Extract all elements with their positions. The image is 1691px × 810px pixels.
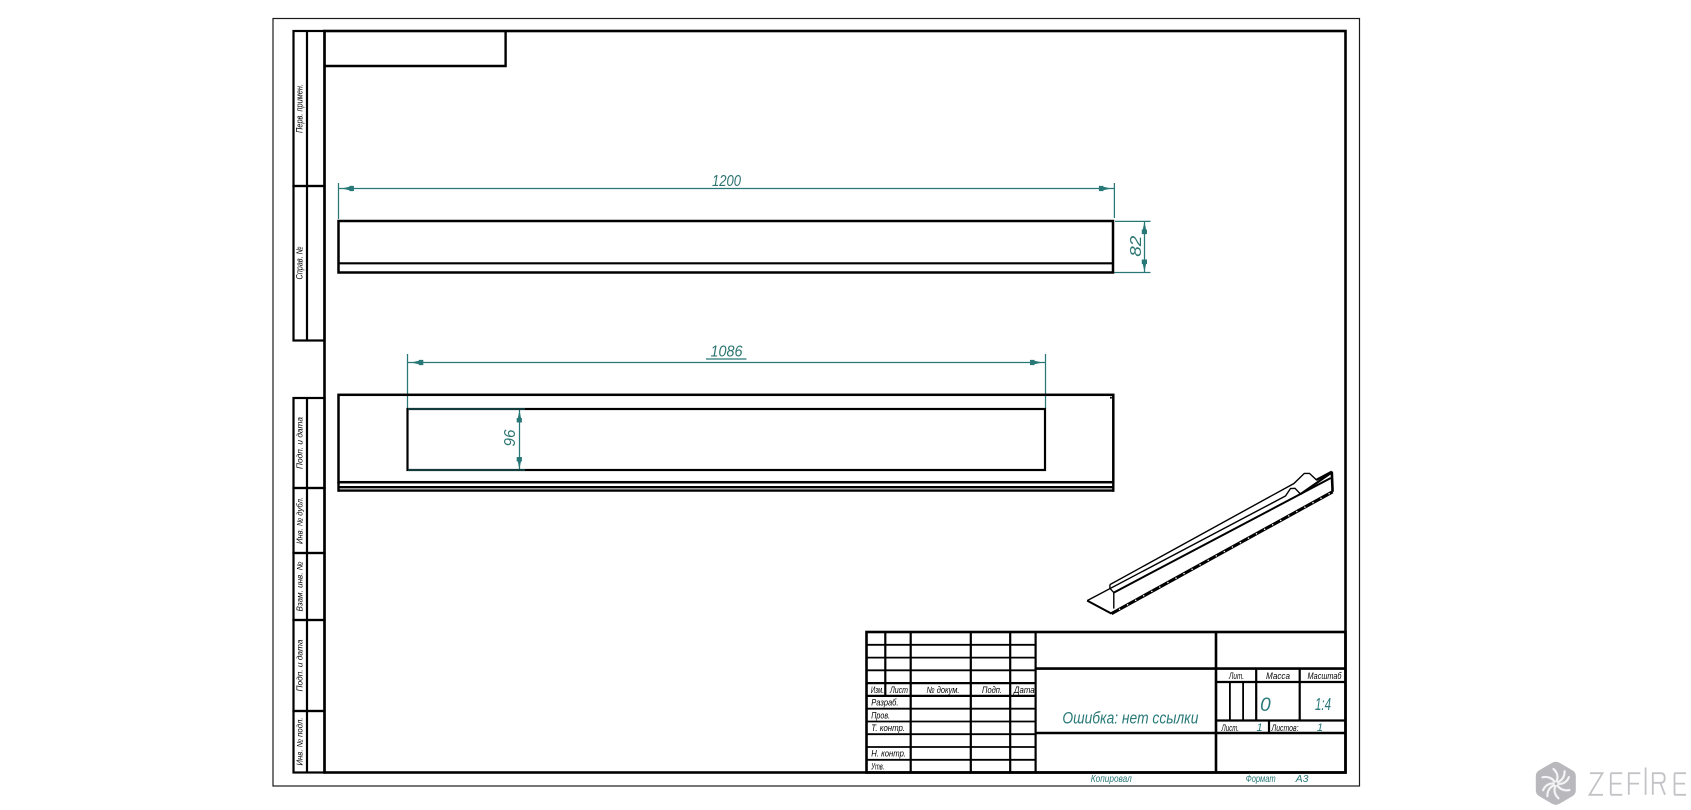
svg-text:1: 1 — [1317, 722, 1323, 734]
svg-text:Инв. № дубл.: Инв. № дубл. — [296, 497, 305, 544]
svg-text:Утв.: Утв. — [871, 762, 885, 772]
svg-text:1: 1 — [1257, 722, 1263, 734]
svg-text:Лист.: Лист. — [1221, 723, 1239, 733]
svg-text:96: 96 — [502, 429, 519, 446]
svg-text:Разраб.: Разраб. — [871, 698, 898, 708]
svg-text:1086: 1086 — [711, 343, 743, 360]
svg-text:Формат: Формат — [1246, 773, 1276, 785]
svg-text:А3: А3 — [1295, 773, 1309, 785]
svg-text:Лист: Лист — [889, 685, 908, 695]
svg-text:Пров.: Пров. — [871, 710, 890, 720]
svg-text:Подп. и дата: Подп. и дата — [295, 417, 305, 469]
svg-text:Изм.: Изм. — [871, 685, 884, 695]
svg-text:Н. контр.: Н. контр. — [871, 749, 906, 759]
svg-text:Масштаб: Масштаб — [1308, 671, 1343, 681]
svg-text:Масса: Масса — [1266, 671, 1290, 681]
svg-text:0: 0 — [1260, 695, 1271, 716]
svg-text:Лит.: Лит. — [1228, 671, 1244, 681]
svg-text:Копировал: Копировал — [1091, 773, 1132, 785]
svg-text:Подп. и дата: Подп. и дата — [295, 639, 305, 691]
svg-text:Т. контр.: Т. контр. — [871, 723, 905, 733]
svg-text:82: 82 — [1128, 236, 1145, 257]
svg-text:Справ. №: Справ. № — [295, 246, 305, 279]
svg-text:1200: 1200 — [712, 173, 741, 190]
svg-text:Взам. инв. №: Взам. инв. № — [296, 561, 305, 611]
svg-text:Ошибка: нет ссылки: Ошибка: нет ссылки — [1062, 709, 1198, 727]
svg-text:Листов:: Листов: — [1271, 723, 1299, 733]
svg-text:Перв. примен.: Перв. примен. — [295, 84, 305, 133]
svg-text:№ докум.: № докум. — [927, 685, 960, 695]
svg-text:1:4: 1:4 — [1315, 694, 1331, 714]
svg-text:Дата: Дата — [1013, 685, 1034, 695]
svg-text:Инв. № подл.: Инв. № подл. — [296, 718, 305, 766]
svg-text:Подп.: Подп. — [982, 685, 1002, 695]
